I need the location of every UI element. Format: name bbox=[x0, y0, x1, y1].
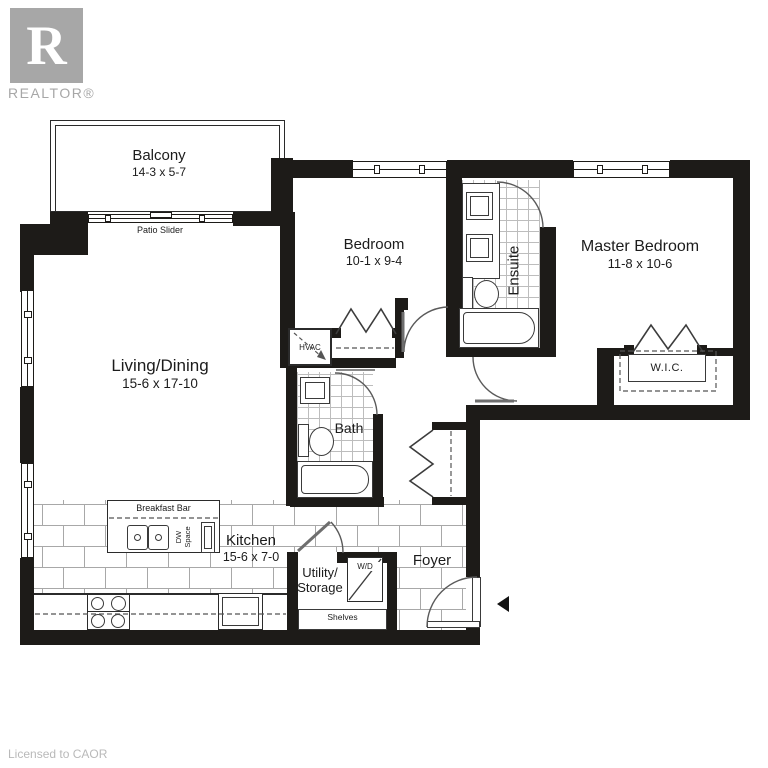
foyer-floor-upper bbox=[287, 500, 466, 552]
kitchen-sink-drain bbox=[134, 534, 141, 541]
stove-burner bbox=[111, 596, 126, 611]
living-window-tick bbox=[24, 481, 32, 488]
wall-foyer-right bbox=[466, 405, 480, 577]
wall-top-b bbox=[447, 160, 573, 178]
bedroom-window-tick bbox=[374, 165, 380, 174]
ensuite-toilet-tank bbox=[462, 277, 473, 309]
master-bedroom-label: Master Bedroom bbox=[560, 238, 720, 256]
wall-linen-bottom bbox=[432, 497, 470, 505]
balcony-label: Balcony bbox=[109, 147, 209, 164]
dw-space-line2: Space bbox=[183, 519, 192, 555]
wall-closet-jamb-l bbox=[332, 328, 341, 338]
wall-left-1 bbox=[20, 255, 34, 292]
ensuite-sink-basin bbox=[470, 196, 489, 216]
hvac-label: HVAC bbox=[288, 343, 332, 352]
realtor-logo-letter: R bbox=[26, 14, 66, 78]
entry-door-leaf bbox=[472, 577, 481, 627]
wall-wic-front-r bbox=[703, 348, 750, 356]
wall-left-3 bbox=[20, 558, 34, 645]
wall-patio-left bbox=[50, 212, 88, 226]
bath-label: Bath bbox=[324, 420, 374, 436]
stove-burner bbox=[111, 614, 125, 628]
foyer-label: Foyer bbox=[402, 552, 462, 569]
wall-patio-right bbox=[233, 212, 285, 226]
license-text: Licensed to CAOR bbox=[8, 748, 168, 762]
ensuite-tub-inner bbox=[463, 312, 535, 344]
wall-closet-jamb-r bbox=[392, 328, 402, 338]
living-window-tick bbox=[24, 533, 32, 540]
wall-bath-right bbox=[373, 414, 383, 505]
bath-tub-inner bbox=[301, 465, 369, 494]
bedroom-label: Bedroom bbox=[324, 236, 424, 253]
wall-ensuite-master bbox=[540, 227, 556, 353]
wall-balcony-corner bbox=[271, 158, 293, 214]
wall-linen-top bbox=[432, 422, 468, 430]
stove-divider bbox=[87, 611, 130, 612]
patio-slider-tick bbox=[199, 215, 205, 222]
wall-bottom bbox=[20, 630, 480, 645]
wall-bath-left bbox=[286, 366, 297, 506]
ensuite-toilet-bowl bbox=[474, 280, 499, 308]
ensuite-sink-basin bbox=[470, 238, 489, 258]
breakfast-bar-label: Breakfast Bar bbox=[107, 503, 220, 513]
wall-wic-left bbox=[597, 348, 614, 420]
kitchen-sink-drain bbox=[155, 534, 162, 541]
floor-plan: R REALTOR® Licensed to CAOR bbox=[0, 0, 768, 768]
wall-bath-bottom bbox=[290, 497, 384, 507]
dw-space-label: DW Space bbox=[174, 519, 192, 555]
dw-space-line1: DW bbox=[174, 519, 183, 555]
master-window-tick bbox=[597, 165, 603, 174]
realtor-logo-text: REALTOR® bbox=[8, 85, 108, 101]
stove-burner bbox=[91, 597, 104, 610]
wall-corner-jog bbox=[20, 224, 88, 255]
patio-slider-tick bbox=[105, 215, 111, 222]
ensuite-label: Ensuite bbox=[505, 225, 522, 317]
kitchen-dims: 15-6 x 7-0 bbox=[206, 550, 296, 564]
living-window-tick bbox=[24, 357, 32, 364]
patio-slider-label: Patio Slider bbox=[110, 225, 210, 235]
bedroom-window-tick bbox=[419, 165, 425, 174]
realtor-logo: R bbox=[10, 8, 83, 83]
bedroom-dims: 10-1 x 9-4 bbox=[324, 254, 424, 268]
wd-label: W/D bbox=[350, 562, 380, 571]
wall-left-2 bbox=[20, 387, 34, 463]
living-window-lower-mullion bbox=[27, 463, 28, 558]
bath-toilet-tank bbox=[298, 424, 309, 457]
wall-ensuite-bottom bbox=[446, 348, 556, 357]
master-window-tick bbox=[642, 165, 648, 174]
wall-bedroom-jamb bbox=[395, 298, 408, 310]
wall-right bbox=[733, 160, 750, 420]
living-window-tick bbox=[24, 311, 32, 318]
utility-label-line2: Storage bbox=[285, 581, 355, 596]
fridge-inner bbox=[222, 597, 259, 626]
living-dining-label: Living/Dining bbox=[90, 356, 230, 376]
balcony-dims: 14-3 x 5-7 bbox=[109, 166, 209, 180]
patio-slider-overlap bbox=[150, 212, 172, 218]
stove-burner bbox=[91, 614, 105, 628]
bath-sink-basin bbox=[305, 382, 325, 399]
master-bedroom-dims: 11-8 x 10-6 bbox=[560, 257, 720, 272]
utility-label-line1: Utility/ bbox=[288, 566, 352, 581]
kitchen-label: Kitchen bbox=[206, 532, 296, 549]
master-window-mullion-line bbox=[573, 169, 670, 170]
living-window-upper-mullion bbox=[27, 290, 28, 387]
wall-utility-right bbox=[387, 552, 397, 632]
bedroom-window-mullion-line bbox=[352, 169, 447, 170]
entry-door-sill bbox=[427, 621, 480, 628]
living-dining-dims: 15-6 x 17-10 bbox=[90, 376, 230, 392]
wic-label: W.I.C. bbox=[628, 362, 706, 375]
shelves-label: Shelves bbox=[298, 613, 387, 623]
